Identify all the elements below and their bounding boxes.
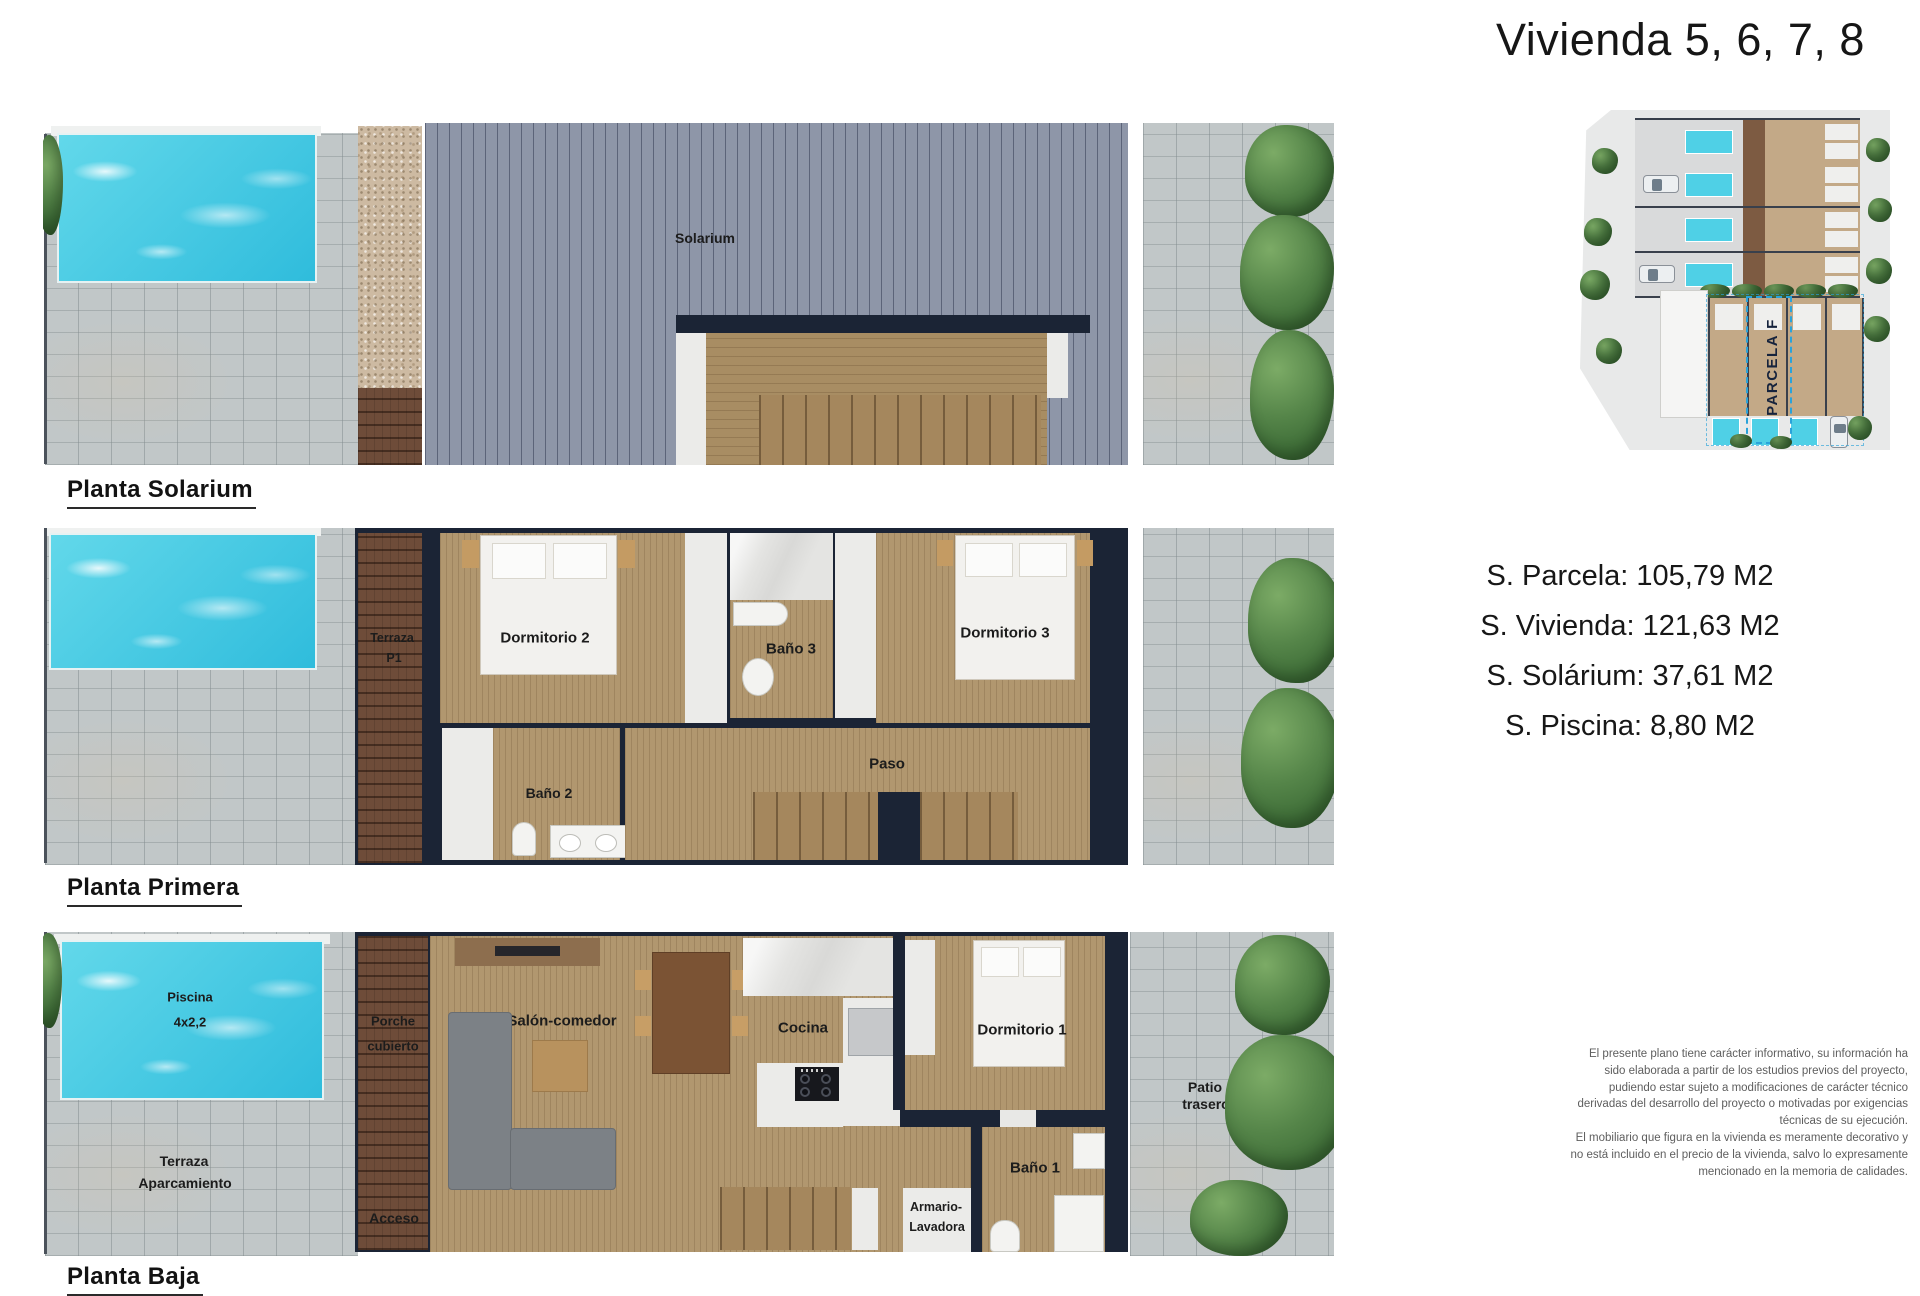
stair-well (878, 792, 920, 860)
tree (1866, 138, 1890, 162)
dining-table (652, 952, 730, 1074)
landing-strip (676, 333, 706, 465)
hallway-strip (835, 533, 876, 718)
fridge (848, 1008, 895, 1056)
pool (49, 533, 317, 670)
bed (973, 940, 1065, 1067)
chair (635, 1016, 651, 1036)
room-label-solarium: Solarium (675, 231, 735, 245)
floorplan-primera: Terraza P1 Dormitorio 2 Baño 3 Dormitori… (43, 528, 1334, 865)
tree (1245, 125, 1334, 217)
car (1639, 265, 1675, 283)
nightstand (937, 540, 953, 566)
hallway-strip (685, 533, 727, 723)
stove (795, 1067, 839, 1101)
interior-wall (971, 1127, 982, 1252)
pool (57, 133, 317, 283)
measurement-vivienda: S. Vivienda: 121,63 M2 (1440, 601, 1820, 651)
room-label-cocina: Cocina (778, 1021, 828, 1036)
stairs (920, 792, 1018, 860)
chair (635, 970, 651, 990)
disclaimer-line: El presente plano tiene carácter informa… (1550, 1046, 1908, 1063)
boundary-line (44, 528, 47, 863)
page-title: Vivienda 5, 6, 7, 8 (1496, 14, 1865, 66)
plan-title-primera: Planta Primera (67, 874, 242, 907)
tree (1596, 338, 1622, 364)
parapet-wall (676, 315, 1090, 333)
stair-landing (1047, 333, 1068, 398)
room-label-bano-3: Baño 3 (766, 642, 816, 657)
tree (1225, 1035, 1334, 1170)
shower-tray (1073, 1133, 1105, 1169)
double-sink-counter (550, 825, 627, 858)
door (1000, 1110, 1036, 1127)
site-rowhouse (1635, 208, 1860, 253)
bed (480, 535, 617, 675)
room-label-porche: Porche (371, 1015, 415, 1028)
sink-counter (1054, 1195, 1104, 1252)
tree (1241, 688, 1334, 828)
disclaimer-line: pudiendo estar sujeto a modificaciones d… (1550, 1080, 1908, 1097)
tree (1248, 558, 1334, 683)
measurement-solarium: S. Solárium: 37,61 M2 (1440, 651, 1820, 701)
tree (1190, 1180, 1288, 1256)
room-label-bano-2: Baño 2 (526, 786, 573, 800)
floorplan-baja: Piscina 4x2,2 Terraza Aparcamiento Porch… (43, 930, 1334, 1256)
washbasin (733, 602, 788, 626)
room-label-terraza-p1: Terraza (370, 632, 414, 645)
gravel-strip (358, 126, 422, 388)
tree (1866, 258, 1892, 284)
toilet (742, 658, 774, 696)
stair-landing (852, 1188, 878, 1250)
toilet (990, 1220, 1020, 1252)
tree (1864, 316, 1890, 342)
room-label-terraza-p1: P1 (386, 652, 401, 665)
site-rowhouse (1635, 118, 1860, 163)
room-label-dormitorio-2: Dormitorio 2 (500, 631, 589, 646)
interior-wall (893, 936, 905, 1110)
wardrobe (905, 940, 935, 1055)
nightstand (618, 540, 635, 568)
tree (1240, 215, 1334, 330)
surface-measurements: S. Parcela: 105,79 M2 S. Vivienda: 121,6… (1440, 551, 1820, 751)
parcela-f-label: PARCELA F (1764, 307, 1780, 427)
site-plan-thumbnail: PARCELA F (1580, 110, 1890, 450)
tree (1770, 436, 1792, 449)
tree (1580, 270, 1610, 300)
disclaimer-line: no está incluido en el precio de la vivi… (1550, 1147, 1908, 1164)
car (1643, 175, 1679, 193)
room-label-patio: Patio (1188, 1080, 1222, 1094)
floorplan-solarium: Solarium (43, 122, 1334, 465)
coffee-table (532, 1040, 588, 1092)
site-building (1660, 290, 1708, 418)
tree (1592, 148, 1618, 174)
tree (1848, 416, 1872, 440)
room-label-aparcamiento: Aparcamiento (138, 1176, 231, 1190)
chair (732, 1016, 748, 1036)
room-label-armario: Armario- (910, 1201, 962, 1214)
room-label-acceso: Acceso (369, 1211, 419, 1225)
bathroom2-shower (442, 728, 493, 860)
measurement-parcela: S. Parcela: 105,79 M2 (1440, 551, 1820, 601)
disclaimer: El presente plano tiene carácter informa… (1550, 1046, 1908, 1180)
bed (955, 535, 1075, 680)
stairs (753, 792, 878, 860)
nightstand (1077, 540, 1093, 566)
tree (1250, 330, 1334, 460)
site-rowhouse (1635, 163, 1860, 208)
room-label-salon: Salón-comedor (507, 1014, 616, 1029)
bathroom3-shower (730, 533, 833, 600)
room-label-paso: Paso (869, 757, 905, 772)
sofa (510, 1128, 616, 1190)
stairs (759, 395, 1041, 465)
porch (358, 936, 428, 1250)
disclaimer-line: sido elaborada a partir de los estudios … (1550, 1063, 1908, 1080)
room-label-piscina-size: 4x2,2 (174, 1016, 207, 1029)
nightstand (462, 540, 479, 568)
sofa (448, 1012, 512, 1190)
tree (1868, 198, 1892, 222)
stairs (720, 1187, 850, 1250)
room-label-dormitorio-3: Dormitorio 3 (960, 626, 1049, 641)
measurement-piscina: S. Piscina: 8,80 M2 (1440, 701, 1820, 751)
room-label-piscina: Piscina (167, 991, 213, 1004)
disclaimer-line: técnicas de su ejecución. (1550, 1113, 1908, 1130)
room-label-cubierto: cubierto (367, 1040, 418, 1053)
room-label-trasero: trasero (1182, 1097, 1229, 1111)
room-label-terraza: Terraza (160, 1154, 209, 1168)
toilet (512, 822, 536, 856)
disclaimer-line: derivadas del desarrollo del proyecto o … (1550, 1096, 1908, 1113)
tree (1584, 218, 1612, 246)
terrace-p1 (358, 533, 422, 863)
disclaimer-line: El mobiliario que figura en la vivienda … (1550, 1130, 1908, 1147)
plan-title-solarium: Planta Solarium (67, 476, 256, 509)
tv (495, 946, 560, 956)
disclaimer-line: mencionado en la memoria de calidades. (1550, 1164, 1908, 1181)
tree (1730, 434, 1752, 448)
tree (1235, 935, 1330, 1035)
room-label-dormitorio-1: Dormitorio 1 (977, 1023, 1066, 1038)
wood-deck-strip (358, 388, 422, 465)
room-label-bano-1: Baño 1 (1010, 1161, 1060, 1176)
kitchen-counter (743, 938, 898, 996)
room-label-lavadora: Lavadora (909, 1221, 965, 1234)
